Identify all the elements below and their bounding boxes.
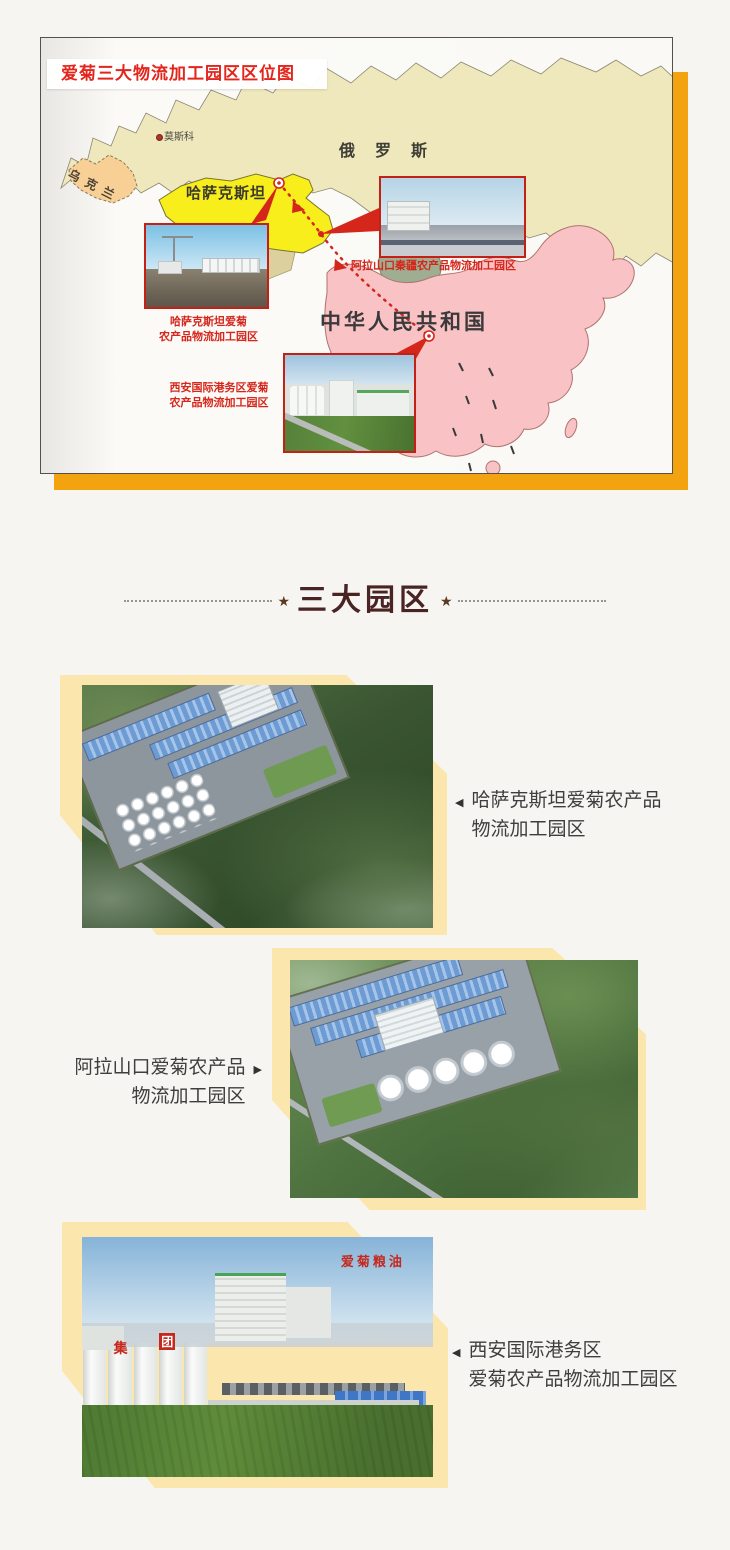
marker-kazakhstan	[274, 178, 284, 188]
star-icon: ★	[277, 594, 290, 608]
caption-text: 阿拉山口爱菊农产品 物流加工园区	[36, 1053, 246, 1112]
park-caption-alashankou: 阿拉山口爱菊农产品 物流加工园区 ▶	[36, 1053, 262, 1112]
photo-art-ground	[146, 269, 267, 307]
tank-signage: 集	[114, 1338, 128, 1358]
tank-signage: 团	[159, 1333, 175, 1350]
caption-text: 哈萨克斯坦爱菊农产品 物流加工园区	[471, 786, 661, 845]
photo-art-green-patch	[321, 1083, 382, 1127]
dotted-divider-left	[124, 600, 272, 602]
country-label-russia: 俄罗斯	[339, 137, 447, 161]
park-caption-kazakhstan: ◀ 哈萨克斯坦爱菊农产品 物流加工园区	[455, 786, 717, 845]
caption-line: 西安国际港务区爱菊	[149, 381, 289, 396]
country-label-kazakhstan: 哈萨克斯坦	[186, 182, 266, 203]
park-caption-xian: ◀ 西安国际港务区 爱菊农产品物流加工园区	[452, 1336, 720, 1395]
photo-art-building	[387, 201, 430, 230]
park-photo-xian: 爱菊粮油 集 团	[82, 1237, 433, 1477]
map-caption-kazakhstan: 哈萨克斯坦爱菊 农产品物流加工园区	[136, 315, 281, 346]
section-header: ★ 三大园区 ★	[0, 583, 730, 619]
caption-line: 物流加工园区	[471, 815, 661, 844]
photo-art-silos	[290, 386, 324, 415]
marker-alashankou	[318, 231, 324, 237]
left-arrow-icon: ◀	[455, 786, 463, 845]
map-photo-kazakhstan	[144, 223, 269, 309]
country-label-china: 中华人民共和国	[320, 306, 488, 336]
map-caption-xian: 西安国际港务区爱菊 农产品物流加工园区	[149, 381, 289, 412]
photo-art-building	[329, 380, 354, 417]
caption-text: 西安国际港务区 爱菊农产品物流加工园区	[468, 1336, 677, 1395]
left-arrow-icon: ◀	[452, 1336, 460, 1395]
caption-line: 爱菊农产品物流加工园区	[468, 1365, 677, 1394]
photo-art-warehouse	[357, 390, 409, 416]
map-photo-alashankou	[379, 176, 526, 258]
dotted-divider-right	[458, 600, 606, 602]
caption-line: 阿拉山口爱菊农产品	[36, 1053, 246, 1082]
location-map-card: 爱菊三大物流加工园区区位图 莫斯科 俄罗斯 乌克兰 哈萨克斯坦 中华人民共和国	[40, 37, 673, 474]
caption-line: 农产品物流加工园区	[149, 396, 289, 411]
photo-art-ground-strip	[381, 240, 524, 245]
caption-line: 农产品物流加工园区	[136, 330, 281, 345]
photo-art-mill-tower	[215, 1273, 285, 1341]
park-photo-alashankou	[290, 960, 638, 1198]
island-taiwan	[563, 417, 579, 439]
caption-line: 西安国际港务区	[468, 1336, 677, 1365]
right-arrow-icon: ▶	[254, 1053, 262, 1112]
map-title: 爱菊三大物流加工园区区位图	[47, 59, 327, 89]
photo-art-silos	[202, 258, 260, 273]
building-signage: 爱菊粮油	[341, 1251, 405, 1270]
map-caption-alashankou: 阿拉山口秦疆农产品物流加工园区	[351, 259, 516, 274]
photo-art-building	[158, 261, 182, 274]
map-photo-xian	[283, 353, 416, 453]
photo-art-crane	[162, 236, 193, 238]
page: 爱菊三大物流加工园区区位图 莫斯科 俄罗斯 乌克兰 哈萨克斯坦 中华人民共和国	[0, 0, 730, 1550]
caption-line: 物流加工园区	[36, 1082, 246, 1111]
photo-art-mill-tower	[286, 1287, 332, 1337]
moscow-dot-icon	[156, 134, 163, 141]
photo-art-crane	[173, 236, 175, 261]
park-photo-kazakhstan	[82, 685, 433, 928]
island-hainan	[486, 461, 500, 474]
section-title: 三大园区	[297, 583, 433, 619]
caption-line: 哈萨克斯坦爱菊农产品	[471, 786, 661, 815]
city-label-moscow: 莫斯科	[164, 128, 194, 143]
caption-line: 哈萨克斯坦爱菊	[136, 315, 281, 330]
photo-art-field	[82, 1405, 433, 1477]
star-icon: ★	[440, 594, 453, 608]
